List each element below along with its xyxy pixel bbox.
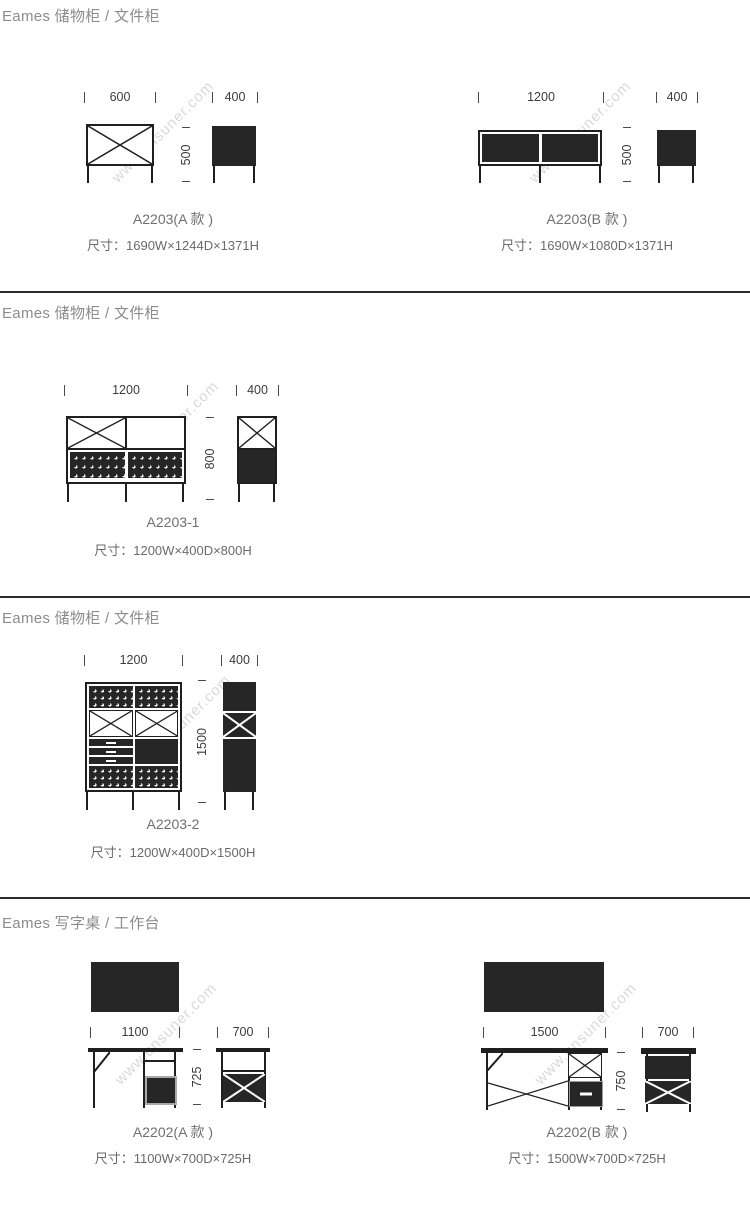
x-brace-icon [88,126,152,164]
x-brace-icon [569,1054,601,1077]
section-3-header: Eames 储物柜 / 文件柜 [2,607,160,628]
product-name: A2203-2 [23,816,323,832]
leg-brace-icon [94,1052,110,1072]
side-top-panel [223,682,256,711]
dim-tick [605,1027,606,1038]
product-size: 尺寸：1100W×700D×725H [3,1148,343,1167]
product-name: A2203(A 款 ) [23,209,323,229]
catalog-page: www.unsuner.com www.unsuner.com www.unsu… [0,0,750,1212]
dimpled-door-panel [128,452,183,478]
dim-dash [193,1049,201,1050]
dimpled-door-panel [89,766,133,788]
x-row [89,710,178,737]
leg [479,165,481,183]
side-view-drawing [212,126,256,166]
desk-top-view [484,962,604,1012]
depth-dimension: 400 [212,90,258,104]
dim-value: 1100 [91,1025,179,1039]
product-size: 尺寸：1500W×700D×725H [417,1148,750,1167]
dim-dash [617,1109,625,1110]
front-view-drawing [66,416,186,484]
width-dimension: 1200 [84,653,183,667]
dim-value: 1500 [484,1025,605,1039]
dim-value: 700 [643,1025,693,1039]
side-view-drawing [237,416,277,484]
lower-doors [68,450,184,480]
pedestal-rail [143,1060,176,1062]
width-dimension: 600 [84,90,156,104]
drawer-stack [89,739,133,764]
side-view-drawing [657,130,696,166]
dim-dash [617,1052,625,1053]
dim-dash [623,127,631,128]
x-brace-icon [239,418,275,448]
leg [213,165,215,183]
product-size: 尺寸：1690W×1080D×1371H [417,235,750,254]
drawer-handle [580,1093,592,1096]
leg [224,791,226,810]
dim-value: 1500 [195,728,209,756]
panel-gap [223,737,256,739]
drawer-handle [106,742,116,744]
depth-dimension: 700 [217,1025,269,1039]
depth-dimension: 400 [221,653,258,667]
dim-dash [193,1104,201,1105]
desk-top-side [216,1048,270,1052]
dim-value: 400 [237,383,278,397]
dim-value: 725 [190,1067,204,1088]
dim-value: 750 [614,1071,628,1092]
dim-value: 400 [213,90,257,104]
dim-value: 600 [85,90,155,104]
dim-tick [182,655,183,666]
section-4-header: Eames 写字桌 / 工作台 [2,912,160,933]
drawer [89,739,133,746]
depth-dimension: 400 [656,90,698,104]
leg [599,165,601,183]
dimpled-door-panel [89,686,133,708]
dim-dash [206,417,214,418]
section-divider [0,897,750,899]
dim-value: 1200 [85,653,182,667]
product-size: 尺寸：1690W×1244D×1371H [3,235,343,254]
x-panel-dark [223,1074,265,1102]
width-dimension: 1200 [478,90,604,104]
leg-brace-icon [487,1053,503,1071]
x-brace-icon [223,713,256,737]
leg [238,483,240,502]
x-brace-icon [68,418,125,448]
leg [539,165,541,183]
leg [253,165,255,183]
open-shelf [127,418,184,448]
leg [273,483,275,502]
dimpled-door-panel [135,766,179,788]
product-size: 尺寸：1200W×400D×800H [3,540,343,559]
x-panel [568,1053,602,1078]
x-panel-dark [223,713,256,737]
section-divider [0,596,750,598]
front-view-drawing [478,130,602,166]
leg [132,791,134,810]
leg [67,483,69,502]
depth-dimension: 700 [642,1025,694,1039]
drawer-handle [106,760,116,762]
drawer [89,757,133,764]
dim-tick [278,385,279,396]
x-brace-icon [90,711,132,736]
dim-tick [603,92,604,103]
product-name: A2203(B 款 ) [437,209,737,229]
leg [86,791,88,810]
height-dimension: 500 [180,127,192,182]
side-view-drawing [223,682,256,792]
leg [182,483,184,502]
section-2-header: Eames 储物柜 / 文件柜 [2,302,160,323]
side-rail [221,1070,266,1072]
x-panel [135,710,179,737]
drawer-row [89,739,178,764]
dim-dash [198,680,206,681]
dim-dash [623,181,631,182]
depth-dimension: 400 [236,383,279,397]
dim-tick [697,92,698,103]
leg [692,164,694,183]
cross-stretcher-icon [488,1080,568,1108]
section-1-header: Eames 储物柜 / 文件柜 [2,5,160,26]
side-top-panel [645,1056,691,1079]
dimpled-row [89,686,178,708]
height-dimension: 725 [191,1049,203,1105]
dimpled-door-panel [135,686,179,708]
door-panel [542,134,599,162]
leg [151,165,153,183]
dim-value: 800 [203,448,217,469]
desk-top-view [91,962,179,1012]
drawer [569,1081,603,1107]
dim-value: 1200 [65,383,187,397]
door-panel [482,134,539,162]
dimpled-door-panel [70,452,125,478]
dim-tick [155,92,156,103]
width-dimension: 1200 [64,383,188,397]
product-size: 尺寸：1200W×400D×1500H [3,842,343,861]
x-brace-icon [136,711,178,736]
dim-dash [198,802,206,803]
leg [178,791,180,810]
door-panel [135,739,179,764]
dim-value: 700 [218,1025,268,1039]
x-panel-dark [645,1081,691,1104]
drawer [145,1076,177,1105]
dim-tick [187,385,188,396]
x-brace-icon [223,1074,265,1102]
leg [252,791,254,810]
product-name: A2202(B 款 ) [437,1122,737,1142]
drawer-handle [106,751,116,753]
dim-tick [693,1027,694,1038]
leg [658,164,660,183]
desk-top-side [641,1048,696,1054]
dim-value: 400 [222,653,257,667]
product-name: A2202(A 款 ) [23,1122,323,1142]
dim-dash [182,127,190,128]
x-panel [239,418,275,450]
door-panel [239,450,275,482]
section-divider [0,291,750,293]
leg [87,165,89,183]
front-view-drawing [86,124,154,166]
drawer [89,748,133,755]
dim-tick [257,92,258,103]
product-name: A2203-1 [23,514,323,530]
front-view-drawing [85,682,182,792]
dim-value: 400 [657,90,697,104]
x-panel [68,418,125,448]
dimpled-row [89,766,178,788]
x-brace-icon [645,1081,691,1104]
dim-value: 500 [179,144,193,165]
dim-value: 1200 [479,90,603,104]
height-dimension: 750 [615,1052,627,1110]
dim-dash [182,181,190,182]
x-panel [89,710,133,737]
width-dimension: 1500 [483,1025,606,1039]
dim-tick [257,655,258,666]
width-dimension: 1100 [90,1025,180,1039]
dim-tick [268,1027,269,1038]
height-dimension: 800 [204,417,216,500]
dim-tick [179,1027,180,1038]
dim-dash [206,499,214,500]
height-dimension: 500 [621,127,633,182]
height-dimension: 1500 [196,680,208,803]
leg [125,483,127,502]
dim-value: 500 [620,144,634,165]
upper-shelf [68,418,184,450]
